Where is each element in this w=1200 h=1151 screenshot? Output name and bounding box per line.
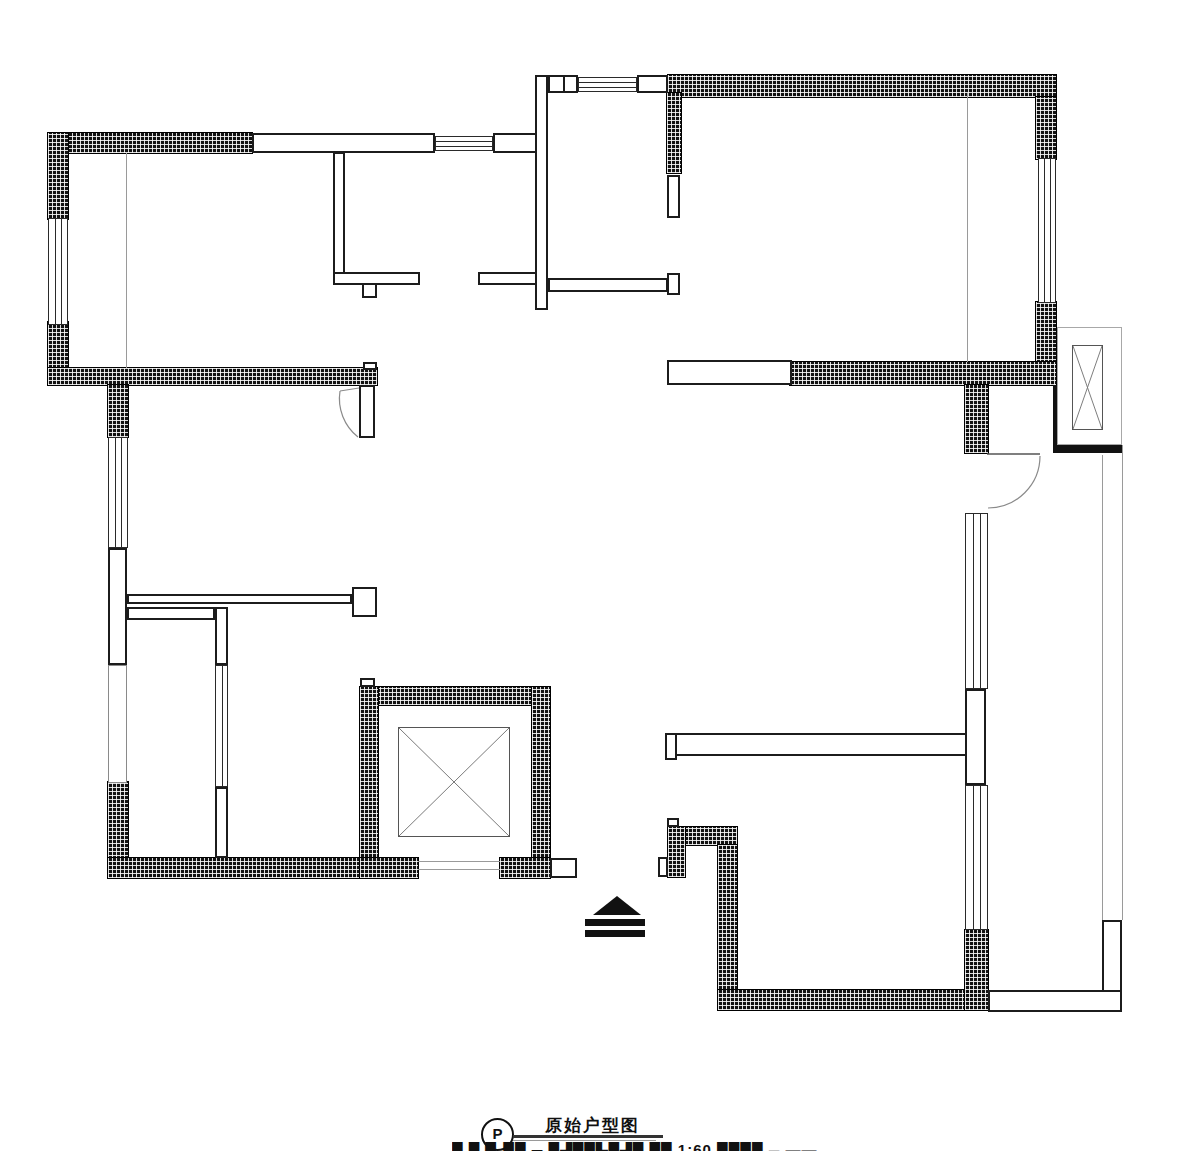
wall-segment-hollow	[667, 273, 680, 295]
window-pane-line	[579, 82, 636, 83]
wall-segment-hatched	[790, 362, 1056, 385]
wall-segment-hatched	[48, 368, 377, 385]
wall-segment-hatched	[108, 858, 360, 878]
wall-segment-hollow	[965, 689, 986, 785]
wall-segment-hollow	[667, 175, 680, 218]
wall-segment-hatched	[360, 687, 378, 878]
window-pane-line	[980, 514, 981, 688]
window-glyph	[435, 136, 493, 151]
title-underline-thin	[513, 1140, 656, 1141]
drawing-title: 原始户型图	[545, 1114, 640, 1137]
construction-line	[418, 869, 500, 870]
wall-segment-hollow	[215, 607, 228, 665]
wall-segment-hollow	[478, 272, 537, 285]
door-swing	[339, 391, 358, 437]
title-underline	[513, 1135, 663, 1138]
wall-segment-hatched	[108, 782, 128, 860]
wall-segment-hollow	[359, 385, 375, 438]
window-pane-line	[1050, 159, 1051, 302]
wall-segment-hollow	[252, 133, 435, 153]
wall-segment-hollow	[1102, 920, 1122, 992]
wall-segment-hatched	[668, 75, 1056, 97]
window-pane-line	[55, 219, 56, 324]
wall-segment-hatched	[360, 687, 550, 705]
window-pane-line	[436, 146, 492, 147]
window-pane-line	[222, 666, 223, 786]
window-pane-line	[980, 786, 981, 929]
construction-line	[418, 861, 500, 862]
window-pane-line	[121, 438, 122, 547]
wall-segment-hatched	[48, 133, 252, 153]
wall-segment-hollow	[352, 587, 377, 617]
window-pane-line	[1044, 159, 1045, 302]
door-swing	[340, 388, 359, 391]
wall-segment-hollow	[333, 152, 345, 283]
wall-segment-hatched	[965, 930, 988, 1010]
window-pane-line	[973, 514, 974, 688]
window-glyph	[965, 513, 988, 689]
wall-segment-hollow	[665, 733, 967, 756]
floor-plan-page: P 原始户型图 █ █ ▉ ██ ─ █▟██▙█▟█ ██ 1:60 ████…	[0, 0, 1200, 1151]
window-pane-line	[115, 438, 116, 547]
wall-segment-hollow	[988, 990, 1122, 1012]
construction-line	[967, 93, 968, 362]
wall-segment-hollow	[658, 857, 668, 877]
wall-segment-hatched	[718, 845, 737, 1010]
wall-segment-hollow	[667, 360, 792, 385]
window-glyph	[108, 437, 128, 548]
wall-segment-hatched	[668, 827, 685, 877]
construction-line	[1122, 445, 1123, 920]
construction-line	[1102, 455, 1103, 920]
wall-segment-hollow	[360, 678, 375, 687]
window-pane-line	[436, 141, 492, 142]
wall-segment-hollow	[108, 548, 127, 665]
window-glyph	[48, 218, 68, 325]
wall-segment-hollow	[362, 283, 377, 298]
wall-segment-hatched	[108, 385, 128, 437]
entry-arrow-bar	[585, 930, 645, 937]
wall-segment-hollow	[215, 787, 228, 858]
wall-segment-hatched	[718, 990, 965, 1010]
window-pane-line	[973, 786, 974, 929]
wall-segment-hatched	[965, 385, 988, 453]
wall-segment-hatched	[1036, 97, 1056, 159]
entry-arrow-bar	[585, 919, 645, 926]
window-glyph	[578, 77, 637, 92]
wall-segment-hollow	[493, 133, 537, 153]
door-swing	[988, 456, 1040, 508]
wall-segment-hatched	[500, 858, 550, 878]
wall-segment-hollow	[550, 858, 577, 878]
construction-line	[126, 153, 127, 368]
wall-segment-hatched	[1036, 302, 1056, 364]
window-pane-line	[61, 219, 62, 324]
door-swing-and-symbols-layer	[0, 0, 1200, 1151]
window-glyph	[965, 785, 988, 930]
wall-segment-hatched	[532, 687, 550, 878]
wall-segment-hollow	[667, 818, 679, 827]
entry-arrow-icon	[593, 896, 641, 915]
wall-segment-hollow	[127, 607, 215, 620]
wall-segment-hatched	[667, 93, 681, 173]
wall-segment-hollow	[563, 75, 578, 93]
wall-segment-hollow	[665, 733, 677, 760]
window-glyph	[215, 665, 228, 787]
cropped-scale-caption: █ █ ▉ ██ ─ █▟██▙█▟█ ██ 1:60 ████ ▄ ▬▬	[452, 1142, 882, 1151]
wall-segment-hatched	[360, 858, 418, 878]
wall-segment-hollow	[548, 278, 668, 292]
window-pane-line	[579, 87, 636, 88]
window-glyph	[1038, 158, 1056, 303]
wall-segment-hollow	[127, 594, 352, 604]
shaft-x-box	[1072, 345, 1103, 430]
wall-segment-hollow	[637, 75, 668, 93]
shaft-x-box	[398, 727, 510, 837]
wall-segment-hatched	[48, 133, 68, 219]
wall-segment-hollow	[363, 362, 377, 370]
window-glyph	[108, 665, 127, 783]
